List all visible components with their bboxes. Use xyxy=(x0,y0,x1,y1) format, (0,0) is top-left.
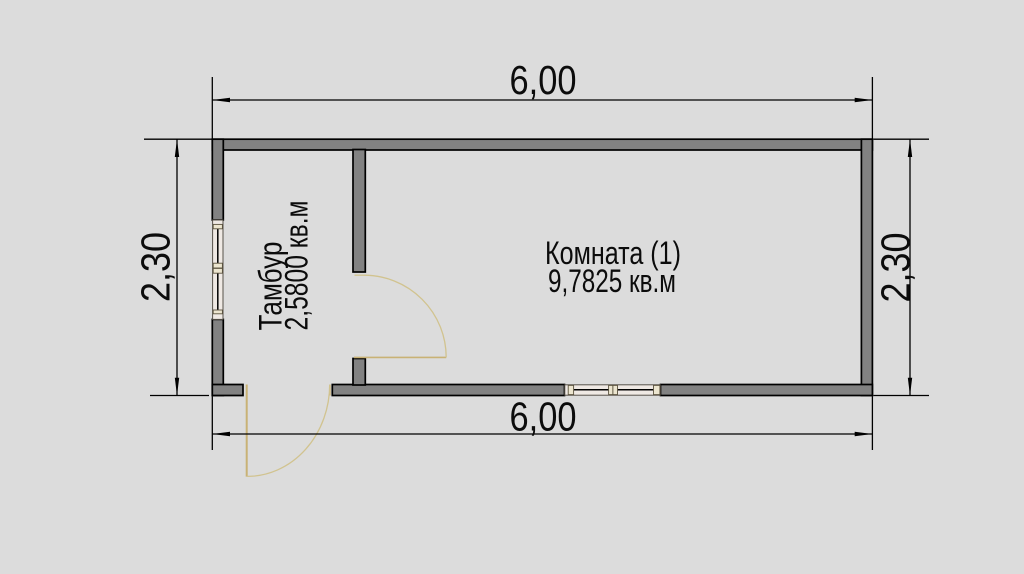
svg-text:6,00: 6,00 xyxy=(510,394,577,440)
svg-text:6,00: 6,00 xyxy=(510,57,577,103)
svg-text:2,30: 2,30 xyxy=(133,232,179,302)
svg-text:2,5800 кв.м: 2,5800 кв.м xyxy=(279,201,315,331)
svg-text:9,7825 кв.м: 9,7825 кв.м xyxy=(548,263,676,299)
svg-text:2,30: 2,30 xyxy=(873,233,919,303)
